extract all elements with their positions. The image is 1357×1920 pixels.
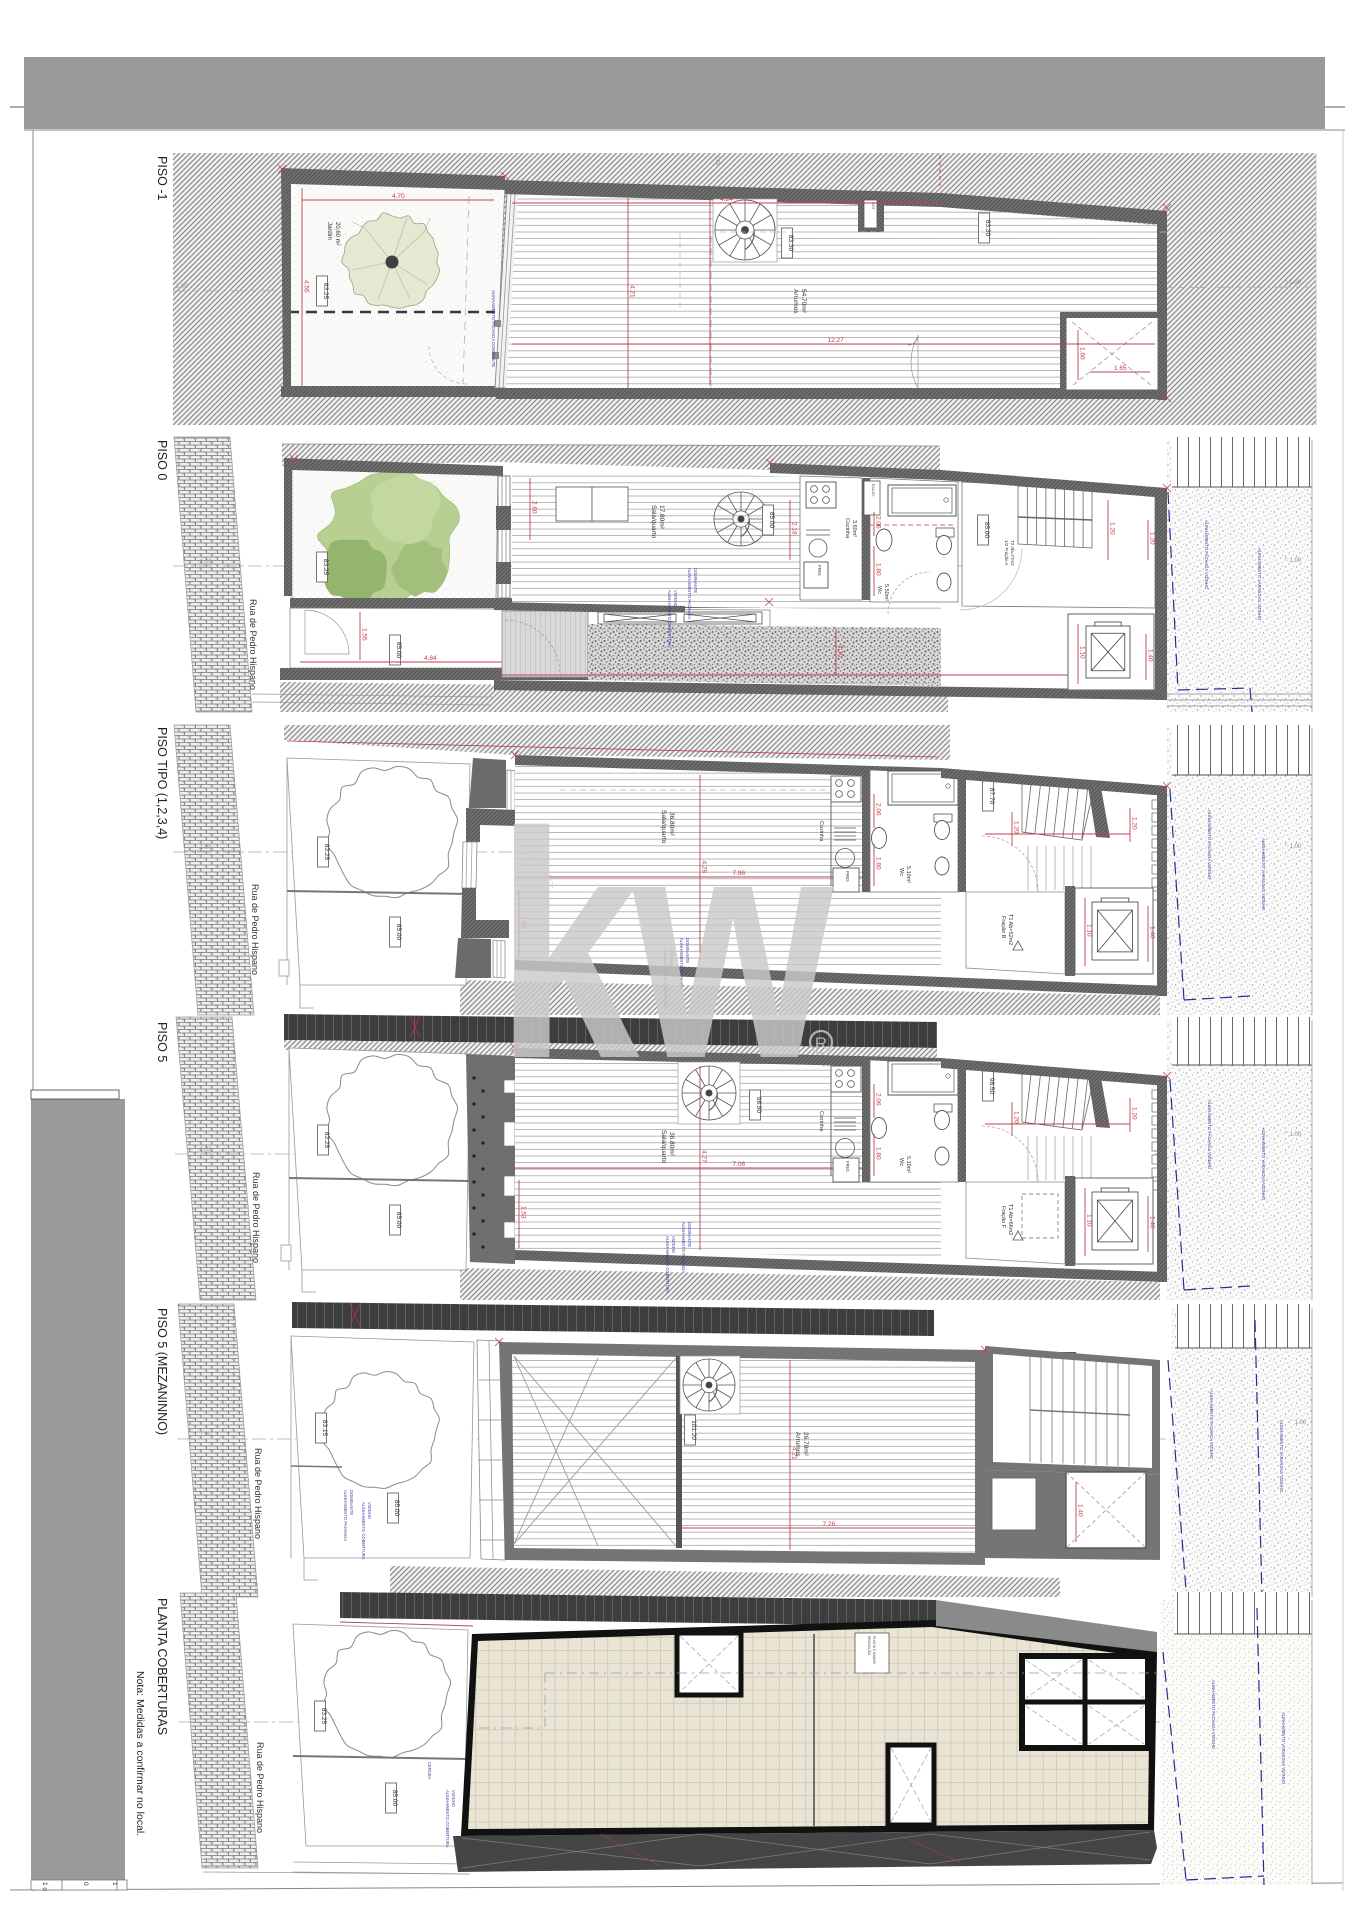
svg-text:1.55: 1.55 (361, 628, 368, 641)
svg-text:Rua de Pedro Hispano: Rua de Pedro Hispano (253, 1448, 263, 1539)
svg-text:R: R (815, 1034, 827, 1053)
svg-text:1 o: 1 o (41, 1882, 48, 1891)
svg-text:1.10: 1.10 (1086, 1214, 1093, 1227)
svg-text:T1 Ab=52m2: T1 Ab=52m2 (1007, 914, 1013, 945)
svg-text:ALINHAMENTO FACHADA VIZINHO: ALINHAMENTO FACHADA VIZINHO (1207, 810, 1212, 880)
svg-text:1.40: 1.40 (1077, 1504, 1084, 1517)
svg-text:1.10: 1.10 (1086, 924, 1093, 937)
svg-text:85.00: 85.00 (395, 642, 402, 659)
svg-text:83.25: 83.25 (323, 844, 330, 861)
svg-text:ALINHAMENTO FACHADA VIZINHO: ALINHAMENTO FACHADA VIZINHO (1204, 520, 1209, 590)
svg-text:1.20: 1.20 (1109, 522, 1116, 535)
svg-text:85.00: 85.00 (391, 1790, 398, 1807)
svg-text:ALINHAMENTO FACHADA: ALINHAMENTO FACHADA (681, 1222, 686, 1273)
svg-text:PISO -1: PISO -1 (155, 156, 169, 201)
svg-text:ALINHAMENTO COBERTURA: ALINHAMENTO COBERTURA (361, 1502, 366, 1560)
svg-text:1.00: 1.00 (176, 284, 188, 290)
svg-text:5.50m²: 5.50m² (883, 584, 889, 601)
svg-text:DEMOLIÇÃO: DEMOLIÇÃO (867, 1636, 872, 1656)
svg-text:2.60: 2.60 (531, 501, 538, 514)
svg-text:PISO 5: PISO 5 (155, 1022, 169, 1062)
svg-text:FRIG: FRIG (845, 871, 850, 882)
svg-text:ALINHAMENTO VARANDAS VIZINHO: ALINHAMENTO VARANDAS VIZINHO (1261, 838, 1266, 911)
svg-text:54.70m²: 54.70m² (800, 289, 807, 314)
svg-text:T1 Ab=66m2: T1 Ab=66m2 (1007, 1204, 1013, 1235)
svg-text:Wc: Wc (898, 868, 904, 876)
svg-text:83.25: 83.25 (323, 1132, 330, 1149)
svg-text:83.30: 83.30 (787, 235, 794, 252)
svg-text:VIZINHO: VIZINHO (451, 1790, 456, 1808)
svg-text:1/2 Fração A: 1/2 Fração A (1004, 540, 1009, 566)
svg-text:1.00: 1.00 (200, 1432, 212, 1438)
svg-text:ALINHAMENTO VARANDAS VIZINHO: ALINHAMENTO VARANDAS VIZINHO (1279, 1420, 1284, 1493)
svg-text:ALINHAMENTO VARANDAS VIZINHO: ALINHAMENTO VARANDAS VIZINHO (1281, 1712, 1286, 1785)
svg-text:T2 Ab=77m2: T2 Ab=77m2 (1010, 540, 1015, 566)
svg-text:ALINHAMENTO COBERTURA: ALINHAMENTO COBERTURA (445, 1790, 450, 1848)
svg-text:85.00: 85.00 (768, 512, 775, 529)
svg-text:1.00: 1.00 (200, 559, 212, 565)
svg-text:4.21: 4.21 (791, 1447, 798, 1460)
svg-text:87.70: 87.70 (988, 788, 995, 805)
svg-text:Wc: Wc (898, 1158, 904, 1166)
svg-text:kw: kw (496, 765, 834, 1125)
svg-text:101.20: 101.20 (690, 1420, 697, 1440)
svg-text:1.20: 1.20 (1131, 1107, 1138, 1120)
svg-text:ALINHAMENTO COBERTURA: ALINHAMENTO COBERTURA (665, 1236, 670, 1294)
svg-text:ALINHAMENTO FACHADA VIZINHO: ALINHAMENTO FACHADA VIZINHO (1207, 1100, 1212, 1170)
svg-text:4.27: 4.27 (701, 1150, 708, 1163)
svg-text:1.20: 1.20 (1131, 817, 1138, 830)
svg-text:⌜ 1.00: ⌜ 1.00 (1285, 1131, 1302, 1138)
svg-text:4.21: 4.21 (629, 285, 636, 298)
svg-text:1.20: 1.20 (1013, 1111, 1020, 1124)
svg-text:Wc: Wc (876, 586, 882, 594)
svg-text:Nota: Medidas a confirmar no l: Nota: Medidas a confirmar no local. (134, 1671, 146, 1836)
svg-text:12.27: 12.27 (828, 337, 845, 344)
svg-text:Rua de Pedro Hispano: Rua de Pedro Hispano (255, 1742, 265, 1833)
svg-text:4.84: 4.84 (424, 655, 437, 662)
svg-text:DOMINANTE: DOMINANTE (349, 1490, 354, 1515)
svg-text:1.00: 1.00 (200, 845, 212, 851)
svg-text:Sala/quarto: Sala/quarto (650, 505, 657, 539)
svg-text:FRIG: FRIG (817, 565, 822, 576)
svg-text:FRIG: FRIG (845, 1161, 850, 1172)
svg-text:Jardim: Jardim (326, 222, 332, 240)
svg-text:ALINHAMENTO FACHADA DOMINANTE: ALINHAMENTO FACHADA DOMINANTE (491, 290, 496, 367)
svg-text:ALINHAMENTO FACHADA VIZINHO: ALINHAMENTO FACHADA VIZINHO (1209, 1390, 1214, 1460)
svg-text:Fração F: Fração F (1000, 1206, 1006, 1229)
svg-text:1.40: 1.40 (1149, 1216, 1156, 1229)
svg-text:83.25: 83.25 (320, 1708, 327, 1725)
svg-text:C01: C01 (714, 156, 720, 165)
svg-text:Rua de Pedro Hispano: Rua de Pedro Hispano (251, 1172, 261, 1263)
svg-text:3.60m²: 3.60m² (851, 520, 857, 537)
svg-text:VIZINHO: VIZINHO (671, 1236, 676, 1254)
svg-text:Rua de Pedro Hispano: Rua de Pedro Hispano (248, 599, 258, 690)
svg-text:ALINHAMENTO COBERTURA: ALINHAMENTO COBERTURA (667, 590, 672, 648)
svg-text:83.25: 83.25 (322, 283, 329, 300)
svg-text:ALINHAMENTO FACHADA: ALINHAMENTO FACHADA (343, 1490, 348, 1541)
svg-text:5.10m²: 5.10m² (905, 866, 911, 883)
svg-text:PISO 5 (MEZANINNO): PISO 5 (MEZANINNO) (155, 1308, 169, 1435)
svg-text:85.00: 85.00 (393, 1500, 400, 1517)
svg-text:DOMINANTE: DOMINANTE (693, 568, 698, 593)
svg-text:Fração B: Fração B (1000, 916, 1006, 939)
svg-text:⌜ 1.00: ⌜ 1.00 (1290, 1419, 1307, 1426)
svg-text:4.70: 4.70 (392, 193, 405, 200)
svg-text:1.80: 1.80 (875, 563, 882, 576)
svg-text:1.60: 1.60 (1079, 347, 1086, 360)
svg-text:ALINHAMENTO VARANDAS VIZINHO: ALINHAMENTO VARANDAS VIZINHO (1261, 1128, 1266, 1201)
svg-text:7.26: 7.26 (823, 1521, 836, 1528)
svg-text:83.15: 83.15 (321, 1420, 328, 1437)
svg-text:5.10m²: 5.10m² (905, 1156, 911, 1173)
svg-text:ALINHAMENTO FACHADA VIZINHO: ALINHAMENTO FACHADA VIZINHO (1211, 1680, 1216, 1750)
svg-text:1.20: 1.20 (1013, 821, 1020, 834)
svg-text:1.40: 1.40 (1147, 649, 1154, 662)
svg-text:VIZINHO: VIZINHO (673, 590, 678, 608)
svg-text:83.30: 83.30 (984, 220, 991, 237)
svg-text:Rua de Pedro Hispano: Rua de Pedro Hispano (250, 884, 260, 975)
svg-text:17.80m²: 17.80m² (658, 505, 665, 530)
svg-text:85.00: 85.00 (395, 924, 402, 941)
svg-text:2.18: 2.18 (791, 522, 798, 535)
svg-text:VIZINHO: VIZINHO (367, 1502, 372, 1520)
svg-text:20,60 m²: 20,60 m² (334, 222, 340, 246)
svg-text:4.55: 4.55 (303, 280, 310, 293)
svg-text:1.10: 1.10 (1079, 646, 1086, 659)
svg-text:36.80m²: 36.80m² (668, 1132, 675, 1157)
svg-text:4.24: 4.24 (720, 196, 733, 203)
svg-text:98.50: 98.50 (988, 1078, 995, 1095)
svg-text:26.70m²: 26.70m² (802, 1432, 809, 1457)
svg-text:0: 0 (82, 1882, 89, 1886)
svg-text:85.00: 85.00 (395, 1212, 402, 1229)
svg-text:ALINHAMENTO VARANDAS VIZINHO: ALINHAMENTO VARANDAS VIZINHO (1257, 548, 1262, 621)
svg-text:⌜ 1.00: ⌜ 1.00 (1285, 557, 1302, 564)
svg-text:PISO 0: PISO 0 (155, 440, 169, 480)
svg-text:2.06: 2.06 (875, 803, 882, 816)
svg-text:DOMINANTE: DOMINANTE (687, 1222, 692, 1247)
svg-text:1.80: 1.80 (875, 857, 882, 870)
svg-text:7.06: 7.06 (733, 1161, 746, 1168)
svg-text:Arrumos: Arrumos (792, 289, 799, 314)
svg-text:| 1.00: | 1.00 (1286, 280, 1302, 286)
svg-text:2.06: 2.06 (875, 516, 882, 529)
svg-text:PLANTA E GABARI: PLANTA E GABARI (872, 1636, 876, 1664)
svg-text:CERCEA: CERCEA (427, 1762, 432, 1780)
svg-text:1.40: 1.40 (1149, 926, 1156, 939)
svg-text:Cozinha: Cozinha (844, 518, 850, 539)
svg-text:1.00: 1.00 (200, 1147, 212, 1153)
svg-text:83.25: 83.25 (322, 559, 329, 576)
svg-text:1.53: 1.53 (520, 1206, 527, 1219)
svg-text:2.06: 2.06 (875, 1093, 882, 1106)
svg-text:PLANTA COBERTURAS: PLANTA COBERTURAS (155, 1598, 169, 1735)
svg-text:ALINHAMENTO FACHADA: ALINHAMENTO FACHADA (687, 568, 692, 619)
svg-text:PISO TIPO (1,2,3,4): PISO TIPO (1,2,3,4) (155, 727, 169, 839)
svg-text:1.20: 1.20 (1149, 532, 1156, 545)
svg-text:EXAUST.: EXAUST. (871, 484, 875, 497)
svg-text:Sala/quarto: Sala/quarto (660, 1130, 667, 1164)
svg-text:4.10: 4.10 (837, 645, 844, 658)
svg-text:1.65: 1.65 (1114, 365, 1127, 372)
svg-text:85.00: 85.00 (983, 522, 990, 539)
svg-text:⌜ 1.00: ⌜ 1.00 (1285, 843, 1302, 850)
svg-text:1.80: 1.80 (875, 1147, 882, 1160)
svg-text:1: 1 (111, 1882, 118, 1886)
